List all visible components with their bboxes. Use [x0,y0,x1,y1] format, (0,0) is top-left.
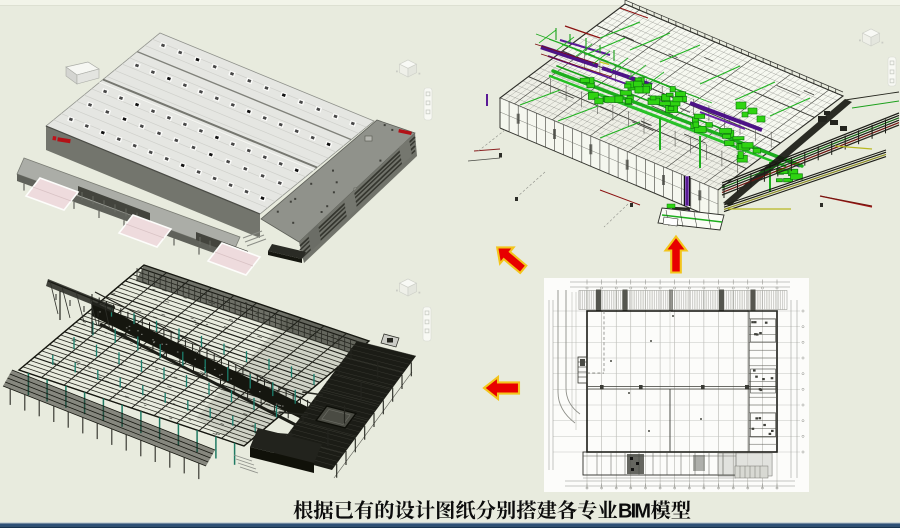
svg-text:BIM: BIM [618,501,650,523]
